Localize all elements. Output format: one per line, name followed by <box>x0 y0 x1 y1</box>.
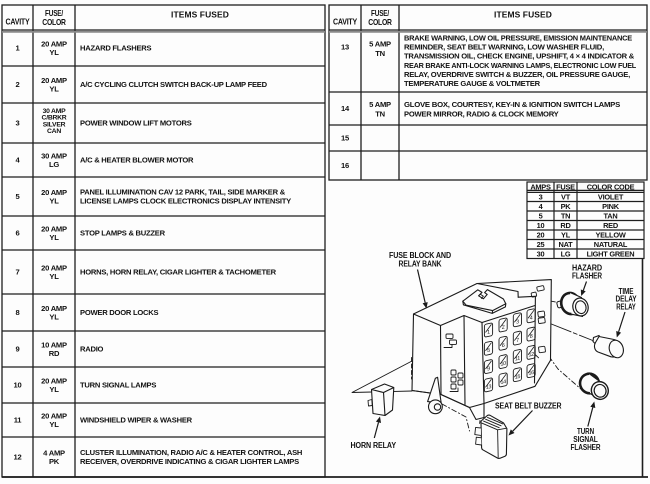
svg-text:HORN RELAY: HORN RELAY <box>351 441 397 450</box>
svg-text:HAZARD FLASHERS: HAZARD FLASHERS <box>80 44 152 53</box>
svg-text:10: 10 <box>500 361 506 368</box>
svg-text:PK: PK <box>49 457 60 466</box>
svg-text:RD: RD <box>49 349 60 358</box>
svg-text:9: 9 <box>487 366 490 373</box>
svg-text:16: 16 <box>528 370 534 377</box>
svg-text:YL: YL <box>49 420 59 429</box>
svg-text:2: 2 <box>502 324 505 331</box>
svg-text:9: 9 <box>16 345 20 354</box>
svg-text:16: 16 <box>341 161 349 170</box>
svg-text:10: 10 <box>537 221 545 230</box>
svg-text:CAN: CAN <box>47 128 61 135</box>
svg-text:5: 5 <box>487 348 490 355</box>
svg-text:RADIO: RADIO <box>80 345 104 354</box>
svg-text:A/C & HEATER BLOWER MOTOR: A/C & HEATER BLOWER MOTOR <box>80 156 194 165</box>
svg-text:BRAKE WARNING, LOW OIL PRESSUR: BRAKE WARNING, LOW OIL PRESSURE, EMISSIO… <box>404 33 632 42</box>
svg-text:NAT: NAT <box>559 240 574 249</box>
svg-text:REAR BRAKE ANTI-LOCK WARNING L: REAR BRAKE ANTI-LOCK WARNING LAMPS, ELEC… <box>404 61 637 70</box>
svg-text:CAVITY: CAVITY <box>333 17 358 26</box>
svg-text:RELAY BANK: RELAY BANK <box>399 260 442 269</box>
svg-text:RD: RD <box>560 221 571 230</box>
svg-text:6: 6 <box>16 229 20 238</box>
svg-text:LG: LG <box>561 249 571 258</box>
svg-text:3: 3 <box>516 319 519 326</box>
svg-text:8: 8 <box>16 308 20 317</box>
svg-text:GLOVE BOX, COURTESY, KEY-IN &: GLOVE BOX, COURTESY, KEY-IN & IGNITION S… <box>404 100 620 109</box>
svg-text:REMINDER, SEAT BELT WARNING, L: REMINDER, SEAT BELT WARNING, LOW WASHER … <box>404 42 604 51</box>
svg-text:YL: YL <box>49 197 59 206</box>
svg-text:RELAY, OVERDRIVE SWITCH & BUZZ: RELAY, OVERDRIVE SWITCH & BUZZER, OIL PR… <box>404 70 630 79</box>
svg-text:HORNS, HORN RELAY, CIGAR LIGHT: HORNS, HORN RELAY, CIGAR LIGHTER & TACHO… <box>80 268 277 277</box>
svg-text:TEMPERATURE GAUGE & VOLTMETER: TEMPERATURE GAUGE & VOLTMETER <box>404 79 541 88</box>
svg-text:YL: YL <box>561 230 571 239</box>
svg-text:6: 6 <box>502 343 505 350</box>
svg-text:10: 10 <box>14 381 22 390</box>
svg-text:YL: YL <box>49 385 59 394</box>
svg-text:RECEIVER, OVERDRIVE INDICATING: RECEIVER, OVERDRIVE INDICATING & CIGAR L… <box>80 457 299 466</box>
svg-text:YL: YL <box>49 272 59 281</box>
svg-text:25: 25 <box>537 240 545 249</box>
svg-text:TAN: TAN <box>604 211 618 220</box>
svg-text:1: 1 <box>487 329 490 336</box>
svg-text:CLUSTER ILLUMINATION, RADIO A/: CLUSTER ILLUMINATION, RADIO A/C & HEATER… <box>80 448 302 457</box>
svg-text:11: 11 <box>14 416 23 425</box>
svg-text:POWER MIRROR, RADIO & CLOCK ME: POWER MIRROR, RADIO & CLOCK MEMORY <box>404 109 559 118</box>
svg-text:20: 20 <box>537 230 545 239</box>
svg-text:7: 7 <box>516 337 519 344</box>
svg-text:TN: TN <box>375 49 385 58</box>
svg-text:LG: LG <box>49 160 59 169</box>
svg-text:COLOR: COLOR <box>42 18 66 27</box>
svg-text:AMPS: AMPS <box>530 182 551 191</box>
svg-text:TURN SIGNAL LAMPS: TURN SIGNAL LAMPS <box>80 381 156 390</box>
svg-text:11: 11 <box>515 356 520 363</box>
svg-text:TRANSMISSION OIL, CHECK ENGINE: TRANSMISSION OIL, CHECK ENGINE, UPSHIFT,… <box>404 52 635 61</box>
svg-text:13: 13 <box>341 43 349 52</box>
svg-text:COLOR CODE: COLOR CODE <box>587 182 635 191</box>
svg-text:CAVITY: CAVITY <box>6 17 31 26</box>
svg-text:LIGHT GREEN: LIGHT GREEN <box>587 249 635 258</box>
svg-text:15: 15 <box>515 374 521 381</box>
svg-text:3: 3 <box>539 192 543 201</box>
svg-text:8: 8 <box>530 333 533 340</box>
svg-text:COLOR: COLOR <box>368 18 392 27</box>
svg-text:4: 4 <box>530 315 533 322</box>
svg-text:12: 12 <box>14 453 22 462</box>
svg-text:7: 7 <box>16 268 20 277</box>
svg-text:RED: RED <box>603 221 619 230</box>
svg-text:TN: TN <box>561 211 570 220</box>
svg-text:YL: YL <box>49 48 59 57</box>
svg-text:VT: VT <box>561 192 571 201</box>
svg-text:5 AMP: 5 AMP <box>369 100 391 109</box>
svg-text:FLASHER: FLASHER <box>571 443 601 452</box>
svg-text:3: 3 <box>16 119 20 128</box>
svg-text:FUSE/: FUSE/ <box>371 9 390 18</box>
svg-text:YL: YL <box>49 85 59 94</box>
svg-text:PANEL ILLUMINATION CAV 12 PARK: PANEL ILLUMINATION CAV 12 PARK, TAIL, SI… <box>80 188 286 197</box>
svg-text:RELAY: RELAY <box>616 302 636 311</box>
svg-text:FUSE/: FUSE/ <box>45 9 64 18</box>
svg-text:15: 15 <box>341 134 350 143</box>
svg-text:5: 5 <box>539 211 543 220</box>
svg-text:YL: YL <box>49 233 59 242</box>
svg-text:YELLOW: YELLOW <box>595 230 625 239</box>
svg-text:WINDSHIELD WIPER & WASHER: WINDSHIELD WIPER & WASHER <box>80 416 193 425</box>
svg-text:14: 14 <box>341 104 350 113</box>
svg-text:ITEMS FUSED: ITEMS FUSED <box>171 10 229 19</box>
svg-text:POWER DOOR LOCKS: POWER DOOR LOCKS <box>80 308 158 317</box>
svg-text:12: 12 <box>528 352 534 359</box>
svg-text:STOP LAMPS & BUZZER: STOP LAMPS & BUZZER <box>80 229 166 238</box>
svg-text:YL: YL <box>49 313 59 322</box>
svg-text:13: 13 <box>486 384 492 391</box>
svg-text:A/C CYCLING CLUTCH SWITCH BACK: A/C CYCLING CLUTCH SWITCH BACK-UP LAMP F… <box>80 80 268 89</box>
svg-text:5 AMP: 5 AMP <box>369 40 391 49</box>
svg-text:TN: TN <box>375 110 385 119</box>
svg-text:NATURAL: NATURAL <box>594 240 628 249</box>
svg-text:PK: PK <box>561 202 572 211</box>
svg-text:FLASHER: FLASHER <box>572 272 602 281</box>
svg-text:POWER WINDOW LIFT MOTORS: POWER WINDOW LIFT MOTORS <box>80 119 192 128</box>
svg-text:2: 2 <box>16 80 20 89</box>
svg-text:LICENSE LAMPS CLOCK ELECTRONIC: LICENSE LAMPS CLOCK ELECTRONICS DISPLAY … <box>80 197 291 206</box>
svg-text:PINK: PINK <box>602 202 620 211</box>
svg-text:14: 14 <box>500 379 506 386</box>
svg-text:ITEMS FUSED: ITEMS FUSED <box>494 10 552 19</box>
svg-text:FUSE: FUSE <box>556 182 575 191</box>
svg-text:SEAT BELT BUZZER: SEAT BELT BUZZER <box>495 402 562 411</box>
svg-text:30: 30 <box>537 249 545 258</box>
svg-text:VIOLET: VIOLET <box>598 192 624 201</box>
